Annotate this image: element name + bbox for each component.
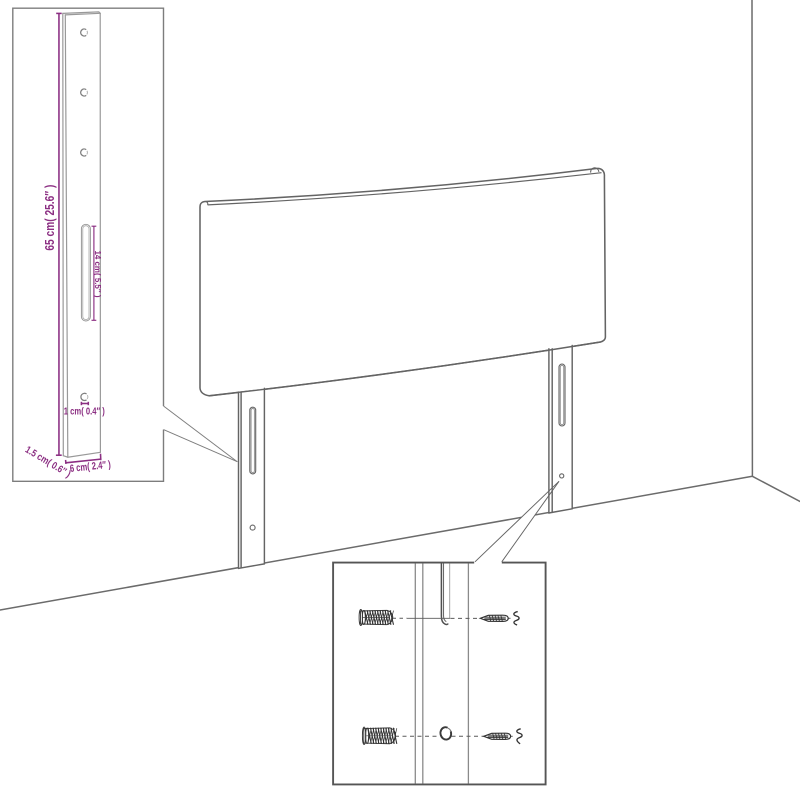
svg-text:65 cm( 25.6″ ): 65 cm( 25.6″ ): [43, 185, 57, 251]
svg-text:1 cm( 0.4″ ): 1 cm( 0.4″ ): [64, 406, 105, 418]
svg-text:14 cm( 5.5″ ): 14 cm( 5.5″ ): [93, 251, 102, 298]
